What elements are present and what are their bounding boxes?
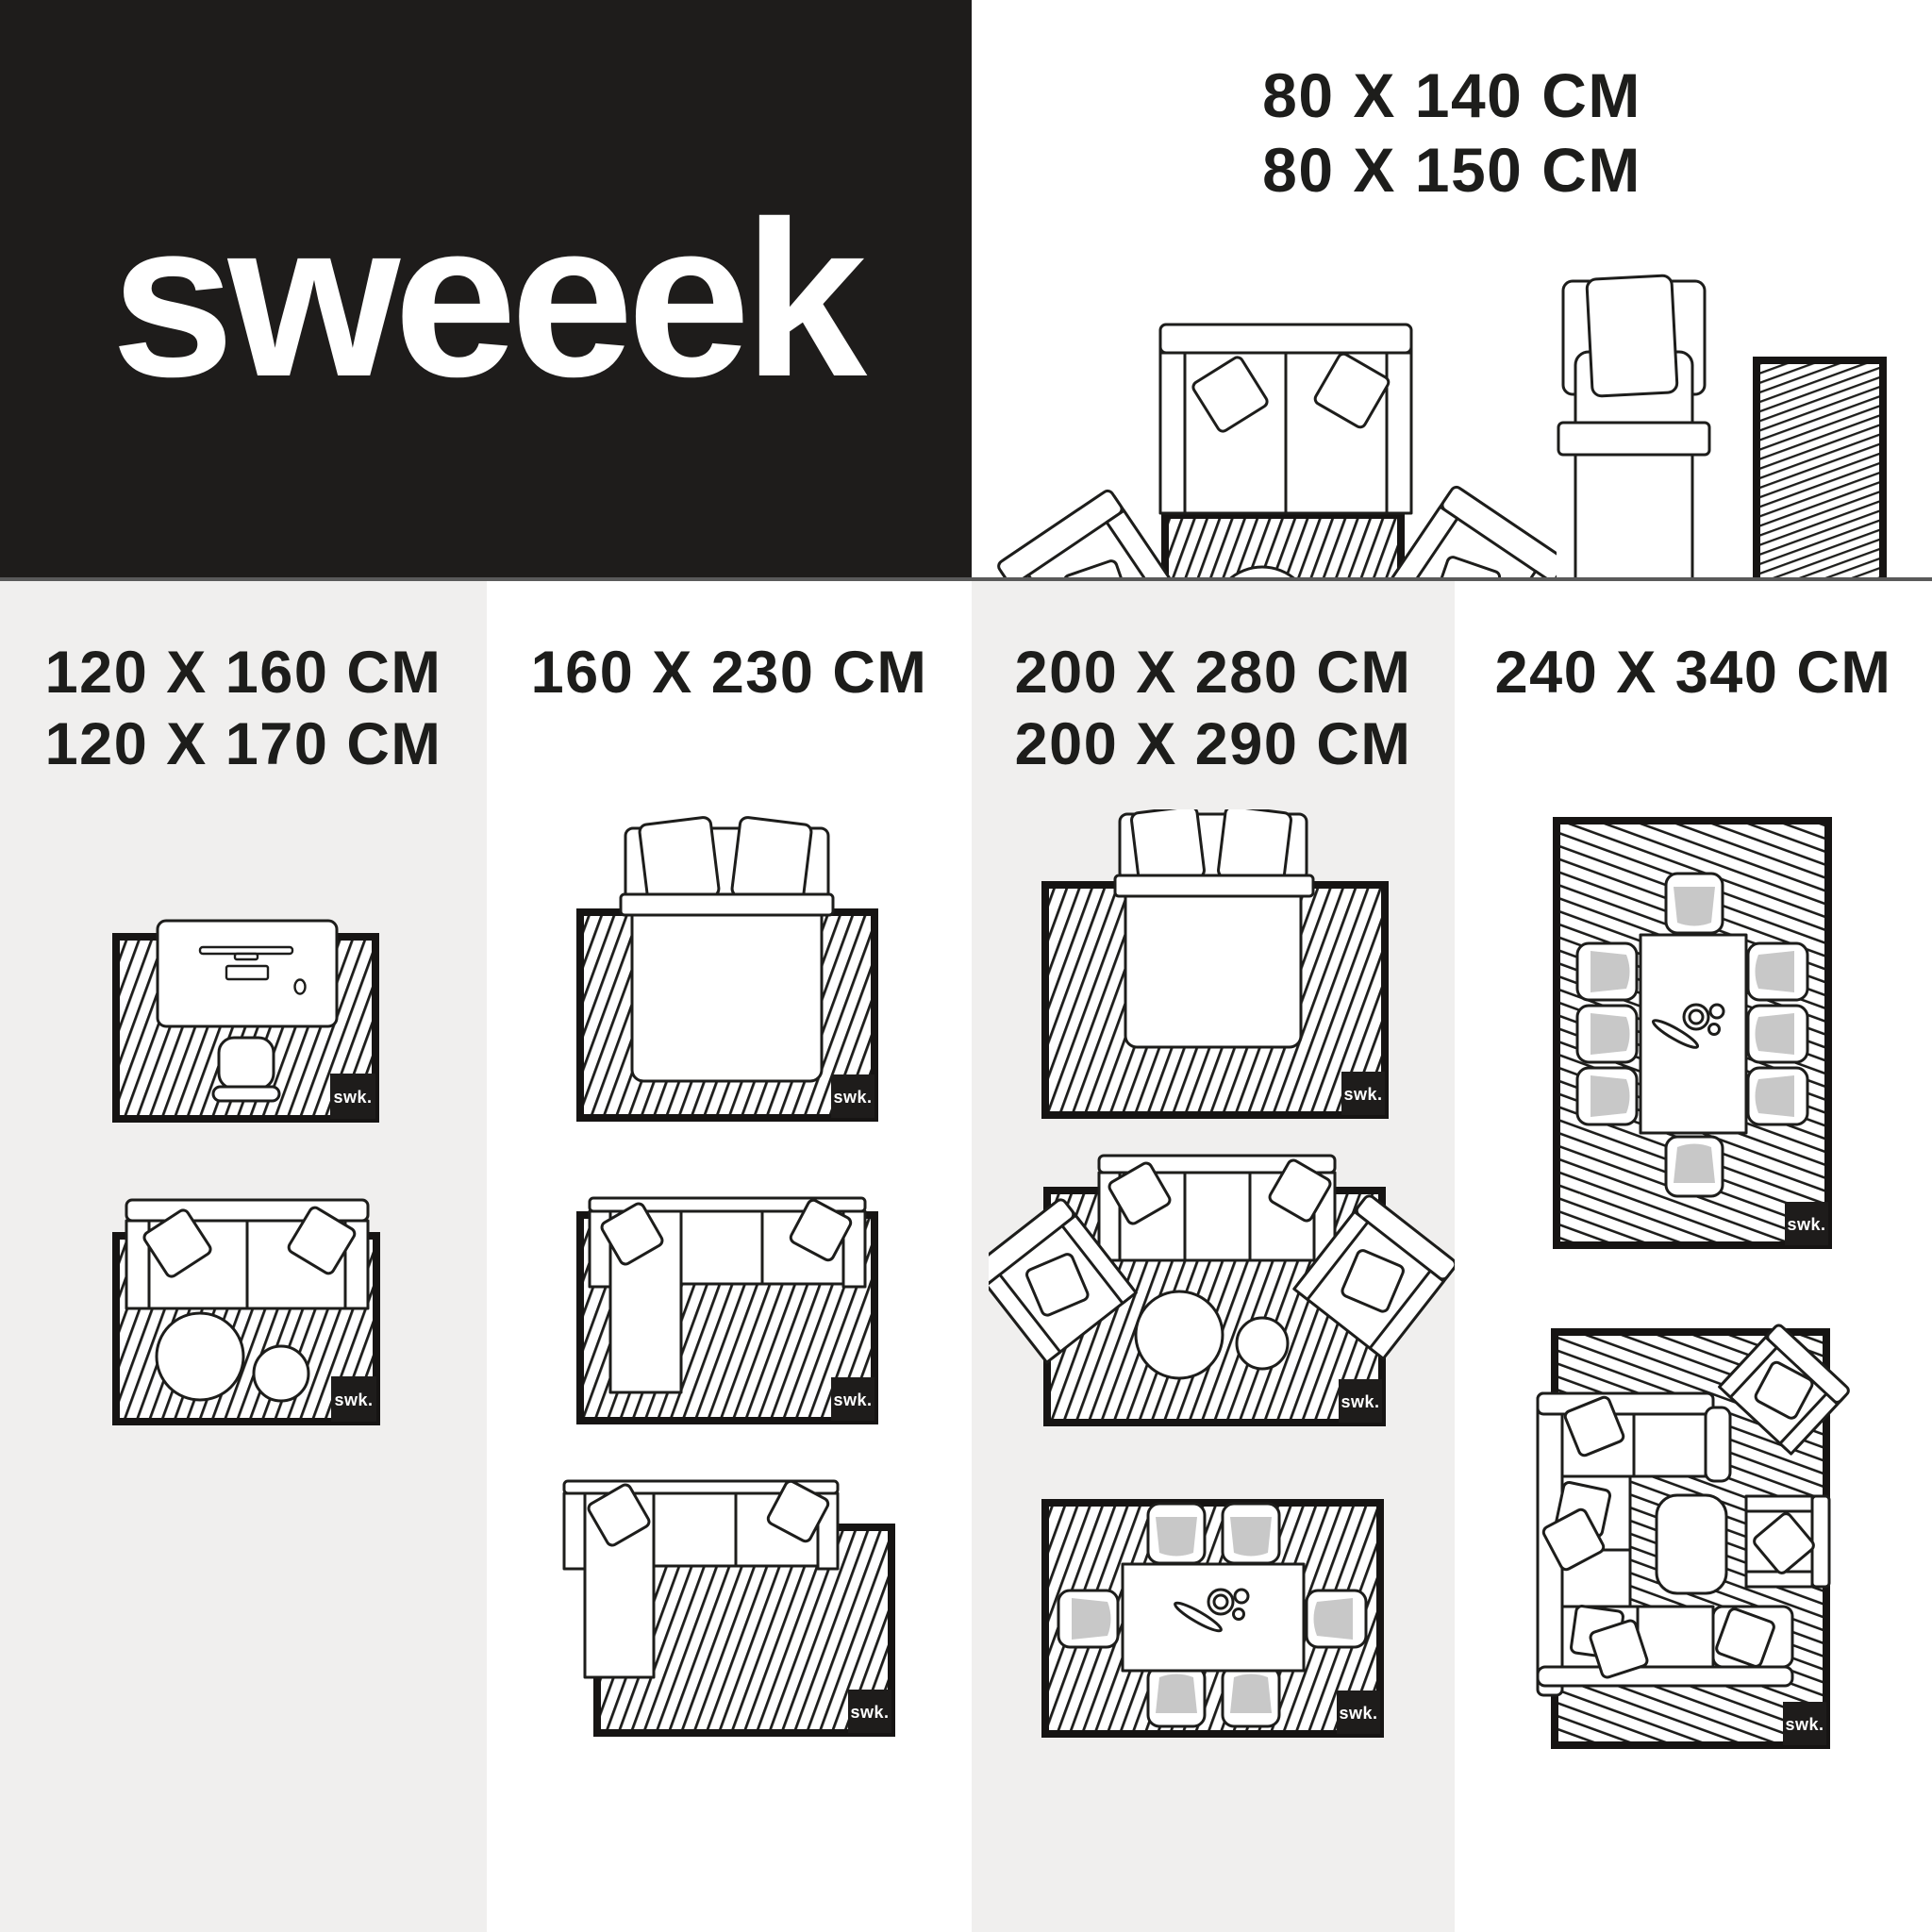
size-line: 120 X 170 CM <box>0 709 487 781</box>
dining-chair-icon <box>1577 1006 1637 1062</box>
dining-chair-icon <box>1058 1591 1118 1647</box>
brand-logo: sweeek <box>111 154 860 426</box>
svg-text:swk.: swk. <box>850 1703 889 1722</box>
diagram-desk-on-rug: swk. <box>57 887 453 1170</box>
size-heading-160: 160 X 230 CM <box>487 638 972 709</box>
mouse-icon <box>295 980 306 994</box>
pillow-icon <box>1131 809 1206 885</box>
svg-text:swk.: swk. <box>1787 1215 1825 1234</box>
size-heading-200: 200 X 280 CM 200 X 290 CM <box>972 638 1455 780</box>
dining-chair-icon <box>1577 943 1637 1000</box>
rug-watermark: swk. <box>1785 1202 1828 1245</box>
svg-text:swk.: swk. <box>1341 1392 1379 1411</box>
size-heading-120: 120 X 160 CM 120 X 170 CM <box>0 638 487 780</box>
desk-icon <box>158 921 337 1026</box>
diagram-bed-on-large-rug: swk. <box>1019 809 1415 1189</box>
size-line: 240 X 340 CM <box>1455 638 1932 709</box>
size-columns: 120 X 160 CM 120 X 170 CM swk. <box>0 581 1932 1932</box>
brand-panel: sweeek <box>0 0 972 580</box>
rug-watermark: swk. <box>831 1074 874 1118</box>
pillow-icon <box>1587 275 1677 397</box>
dining-chair-icon <box>1666 874 1723 933</box>
rug-watermark: swk. <box>1783 1702 1826 1745</box>
pillow-icon <box>731 817 812 905</box>
sofa-icon <box>1099 1156 1335 1260</box>
dining-chair-icon <box>1748 943 1807 1000</box>
bed-icon <box>1115 809 1313 1047</box>
diagram-bed-on-rug: swk. <box>538 811 934 1170</box>
size-heading-240: 240 X 340 CM <box>1455 638 1932 709</box>
size-line: 80 X 150 CM <box>972 133 1932 208</box>
dining-chair-icon <box>1148 1667 1205 1726</box>
size-heading-80: 80 X 140 CM 80 X 150 CM <box>972 58 1932 208</box>
svg-text:swk.: swk. <box>333 1088 372 1107</box>
bed-icon <box>621 817 833 1081</box>
desk-chair-icon <box>213 1038 279 1101</box>
dining-chair-icon <box>1148 1504 1205 1563</box>
dining-table-icon <box>1641 935 1746 1133</box>
sofa-icon <box>1160 325 1411 513</box>
dining-chair-icon <box>1748 1068 1807 1124</box>
diagram-sofa-armchairs-on-rug: swk. <box>989 1141 1464 1509</box>
dining-chair-icon <box>1748 1006 1807 1062</box>
column-160: 160 X 230 CM swk. swk. <box>487 581 972 1932</box>
dining-chair-icon <box>1307 1591 1366 1647</box>
pouf-icon <box>1237 1318 1288 1369</box>
svg-text:swk.: swk. <box>1785 1715 1824 1734</box>
dining-chair-icon <box>1223 1667 1279 1726</box>
column-200: 200 X 280 CM 200 X 290 CM swk. <box>972 581 1455 1932</box>
pillow-icon <box>1218 809 1292 885</box>
rug-watermark: swk. <box>1341 1072 1385 1115</box>
pouf-icon <box>254 1346 308 1401</box>
rug-watermark: swk. <box>330 1074 375 1119</box>
size-line: 200 X 290 CM <box>972 709 1455 781</box>
svg-text:swk.: swk. <box>833 1391 872 1409</box>
rug-watermark: swk. <box>1339 1379 1382 1423</box>
column-120: 120 X 160 CM 120 X 170 CM swk. <box>0 581 487 1932</box>
pillow-icon <box>639 817 720 905</box>
rug-watermark: swk. <box>1337 1690 1380 1734</box>
dining-chair-icon <box>1666 1137 1723 1196</box>
size-line: 160 X 230 CM <box>487 638 972 709</box>
svg-text:swk.: swk. <box>1343 1085 1382 1104</box>
dining-chair-icon <box>1223 1504 1279 1563</box>
diagram-dining-six-chairs: swk. <box>1019 1491 1415 1755</box>
sofa-icon <box>126 1200 368 1308</box>
section-80x140: 80 X 140 CM 80 X 150 CM swk. <box>972 0 1932 580</box>
coffee-table-icon <box>157 1313 243 1400</box>
diagram-dining-eight-chairs: swk. <box>1526 809 1930 1264</box>
size-line: 200 X 280 CM <box>972 638 1455 709</box>
svg-text:swk.: swk. <box>334 1391 373 1409</box>
diagram-corner-sofa-offset-rug: swk. <box>536 1474 960 1790</box>
svg-text:swk.: swk. <box>833 1088 872 1107</box>
coffee-table-icon <box>1657 1495 1726 1593</box>
diagram-corner-sofa-on-rug: swk. <box>538 1194 934 1489</box>
rug-watermark: swk. <box>848 1690 891 1733</box>
rug-watermark: swk. <box>331 1376 376 1422</box>
size-line: 120 X 160 CM <box>0 638 487 709</box>
diagram-sofa-on-rug: swk. <box>57 1189 453 1509</box>
dining-table-icon <box>1123 1564 1304 1671</box>
armchair-icon <box>1746 1496 1829 1587</box>
svg-text:swk.: swk. <box>1339 1704 1377 1723</box>
dining-chair-icon <box>1577 1068 1637 1124</box>
coffee-table-icon <box>1136 1291 1223 1378</box>
diagram-lounge-corner-sofa: swk. <box>1507 1321 1932 1764</box>
size-line: 80 X 140 CM <box>972 58 1932 133</box>
rug-watermark: swk. <box>831 1377 874 1421</box>
monitor-stand-icon <box>235 954 258 959</box>
keyboard-icon <box>226 966 268 979</box>
column-240: 240 X 340 CM swk. <box>1455 581 1932 1932</box>
